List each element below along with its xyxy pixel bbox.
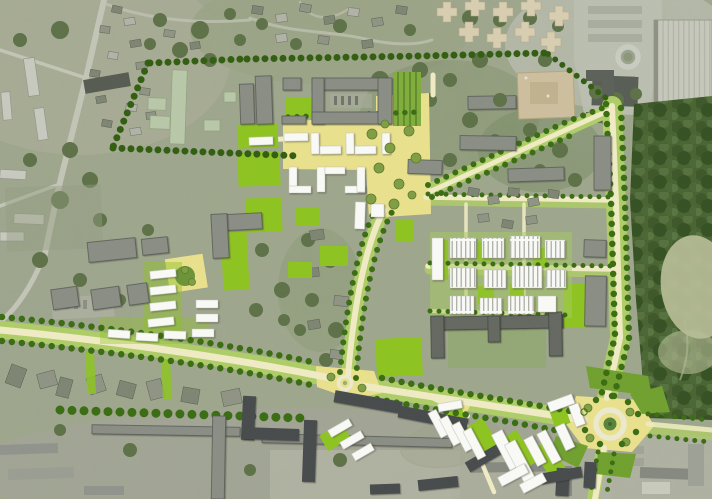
masterplan-aerial-map [0,0,712,499]
industrial-hall [654,20,712,106]
allotments [5,184,103,251]
map-canvas [0,0,712,499]
central-mini-roundabout [339,377,352,390]
u-block-north [312,78,392,124]
retained-slab-north [468,96,516,110]
garden-rows [393,72,421,126]
east-west-street-1 [426,197,614,200]
woodland-east [630,96,712,420]
roundabout-green-south [596,452,636,478]
terraced-housing-rows [432,236,566,314]
